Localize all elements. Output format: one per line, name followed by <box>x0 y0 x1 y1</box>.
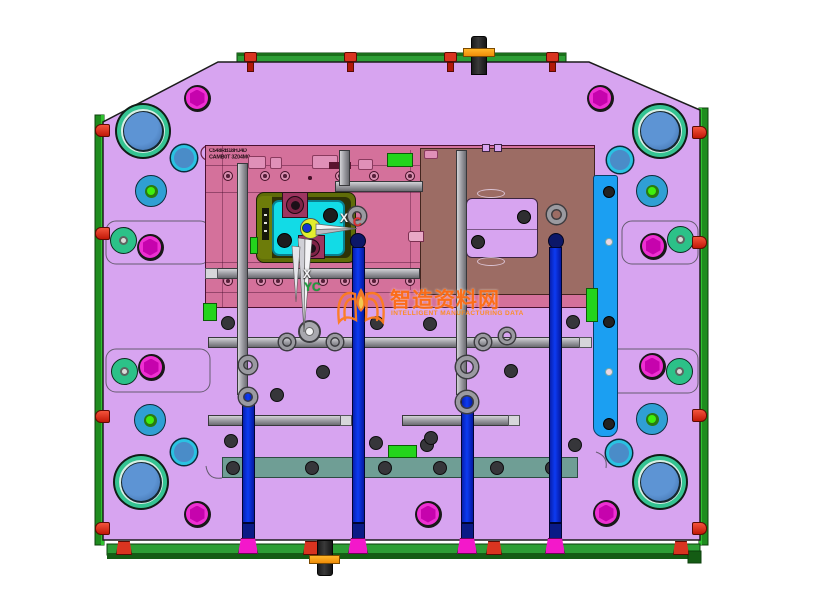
retainer-bar-hole <box>305 461 319 475</box>
stop-button-center <box>675 367 684 376</box>
eyebolt-bottom-collar <box>309 555 340 564</box>
rod-cap <box>205 268 218 279</box>
side-plug <box>95 522 110 535</box>
screw-ring-dot <box>283 174 287 178</box>
eyebolt-top-collar <box>463 48 495 57</box>
clamp-screw-head <box>444 52 457 62</box>
block-hole <box>471 235 485 249</box>
guide-pillar-foot <box>457 538 477 554</box>
retainer-bar-hole <box>433 461 447 475</box>
ring-boss <box>456 356 478 378</box>
guide-bushing-bore <box>122 463 160 501</box>
clamp-tab <box>358 159 373 170</box>
block-hole <box>517 210 531 224</box>
guide-bushing-bore <box>124 112 162 150</box>
screw-ring-dot <box>259 279 263 283</box>
ring-boss <box>499 328 515 344</box>
pin-dot <box>308 176 311 179</box>
guide-pillar-foot <box>348 538 368 554</box>
retainer-bar-hole <box>226 461 240 475</box>
support-pillar-center <box>648 187 656 195</box>
return-pin-bore <box>607 147 633 173</box>
guide-pillar-foot <box>238 538 258 554</box>
support-foot <box>116 541 132 555</box>
stop-button-center <box>120 367 129 376</box>
rod-cap <box>508 415 520 426</box>
ring-boss <box>475 334 491 350</box>
guide-pillar-shadow <box>549 523 562 539</box>
clamp-tab <box>248 156 266 169</box>
support-rod <box>339 150 350 186</box>
clamp-screw-head <box>546 52 559 62</box>
retainer-bar-hole <box>378 461 392 475</box>
ring-boss <box>456 391 478 413</box>
ejector-hole <box>504 364 518 378</box>
return-pin-bore <box>171 439 197 465</box>
clamp-screw-head <box>244 52 257 62</box>
return-pin-bore <box>606 440 632 466</box>
stop-button-center <box>119 236 128 245</box>
guide-bushing-bore <box>641 463 679 501</box>
ejector-hole <box>221 316 235 330</box>
side-plug <box>692 126 707 139</box>
side-plug <box>692 522 707 535</box>
limit-block <box>250 237 258 254</box>
ejector-hole <box>424 431 438 445</box>
side-plug <box>95 227 110 240</box>
clamp-tab <box>424 150 438 159</box>
limit-block <box>387 153 413 167</box>
clamp-screw-tip <box>447 62 454 72</box>
support-foot <box>486 541 502 555</box>
plate-tab <box>494 144 502 152</box>
limit-block <box>586 288 598 322</box>
stop-button-center <box>676 235 685 244</box>
ring-boss <box>239 356 257 374</box>
screw-ring-dot <box>276 279 280 283</box>
support-rod <box>208 337 592 348</box>
guide-pillar-shadow <box>461 523 474 539</box>
return-pin-bore <box>171 145 197 171</box>
ring-boss <box>239 388 257 406</box>
axis-label-x2: X <box>303 268 311 280</box>
cad-viewport: C548RB18HJ4D CAMB0T 3Z04M0 X C X YC <box>0 0 832 609</box>
clamp-tab <box>270 157 282 169</box>
support-foot <box>673 541 689 555</box>
ring-boss <box>547 205 566 224</box>
rod-cap <box>340 415 352 426</box>
guide-pillar-shadow <box>352 523 365 539</box>
limit-block <box>388 445 417 458</box>
axis-label-yc: YC <box>304 281 321 293</box>
ejector-hole <box>369 436 383 450</box>
guide-pillar-foot <box>545 538 565 554</box>
clamp-screw-tip <box>549 62 556 72</box>
axis-label-c: C <box>353 216 362 228</box>
open-book-flame-icon <box>334 280 388 328</box>
guide-pillar <box>549 247 562 523</box>
axis-label-x: X <box>340 212 348 224</box>
clamp-screw-tip <box>347 62 354 72</box>
ejector-hole <box>568 438 582 452</box>
guide-bushing-bore <box>641 112 679 150</box>
side-plug <box>692 409 707 422</box>
side-plug <box>95 124 110 137</box>
side-plug <box>692 236 707 249</box>
support-pillar-center <box>146 416 154 424</box>
limit-block <box>203 303 217 321</box>
clamp-screw-tip <box>247 62 254 72</box>
watermark-en-text: INTELLIGENT MANUFACTURING DATA <box>391 310 524 317</box>
watermark: 智造资料网 INTELLIGENT MANUFACTURING DATA <box>334 280 514 328</box>
screw-ring-dot <box>408 174 412 178</box>
clamp-screw-head <box>344 52 357 62</box>
rod-cap <box>579 337 592 348</box>
side-plug <box>95 410 110 423</box>
ejector-hole <box>270 388 284 402</box>
ejector-hole <box>566 315 580 329</box>
screw-ring-dot <box>226 174 230 178</box>
ejector-hole <box>224 434 238 448</box>
support-pillar-center <box>147 187 155 195</box>
ejector-hole <box>316 365 330 379</box>
guide-pillar <box>242 392 255 523</box>
screw-ring-dot <box>372 174 376 178</box>
screw-ring-dot <box>263 174 267 178</box>
plate-tab <box>482 144 490 152</box>
support-pillar-center <box>648 415 656 423</box>
guide-pillar-shadow <box>242 523 255 539</box>
screw-ring-dot <box>226 279 230 283</box>
retainer-bar-hole <box>490 461 504 475</box>
support-rod <box>208 415 352 426</box>
